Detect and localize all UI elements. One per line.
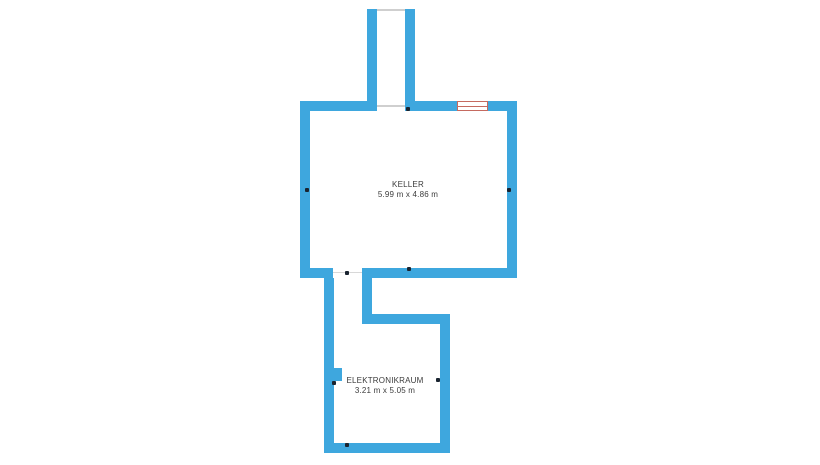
corridor-top-opening-line (377, 9, 405, 11)
wall-elektronikraum-bottom[interactable] (324, 443, 450, 453)
wall-elektronikraum-top-jog[interactable] (362, 314, 450, 324)
wall-keller-top-left-segment[interactable] (300, 101, 377, 111)
room-label-elektronikraum: ELEKTRONIKRAUM 3.21 m x 5.05 m (330, 376, 440, 396)
point-marker[interactable] (406, 107, 410, 111)
window[interactable] (457, 101, 488, 111)
room-name: KELLER (308, 180, 508, 190)
corridor-threshold-line (377, 105, 405, 107)
floor-plan-canvas: KELLER 5.99 m x 4.86 m ELEKTRONIKRAUM 3.… (0, 0, 820, 465)
point-marker[interactable] (345, 443, 349, 447)
room-dimensions: 5.99 m x 4.86 m (308, 190, 508, 200)
wall-elektronikraum-right[interactable] (440, 314, 450, 453)
wall-elektronikraum-left[interactable] (324, 278, 334, 453)
room-label-keller: KELLER 5.99 m x 4.86 m (308, 180, 508, 200)
wall-keller-bottom-left-segment[interactable] (300, 268, 333, 278)
room-dimensions: 3.21 m x 5.05 m (330, 386, 440, 396)
wall-top-corridor-left[interactable] (367, 9, 377, 111)
window-pane-line (458, 106, 487, 107)
wall-keller-bottom-right-segment[interactable] (362, 268, 517, 278)
point-marker[interactable] (345, 271, 349, 275)
room-name: ELEKTRONIKRAUM (330, 376, 440, 386)
wall-top-corridor-right[interactable] (405, 9, 415, 111)
point-marker[interactable] (407, 267, 411, 271)
